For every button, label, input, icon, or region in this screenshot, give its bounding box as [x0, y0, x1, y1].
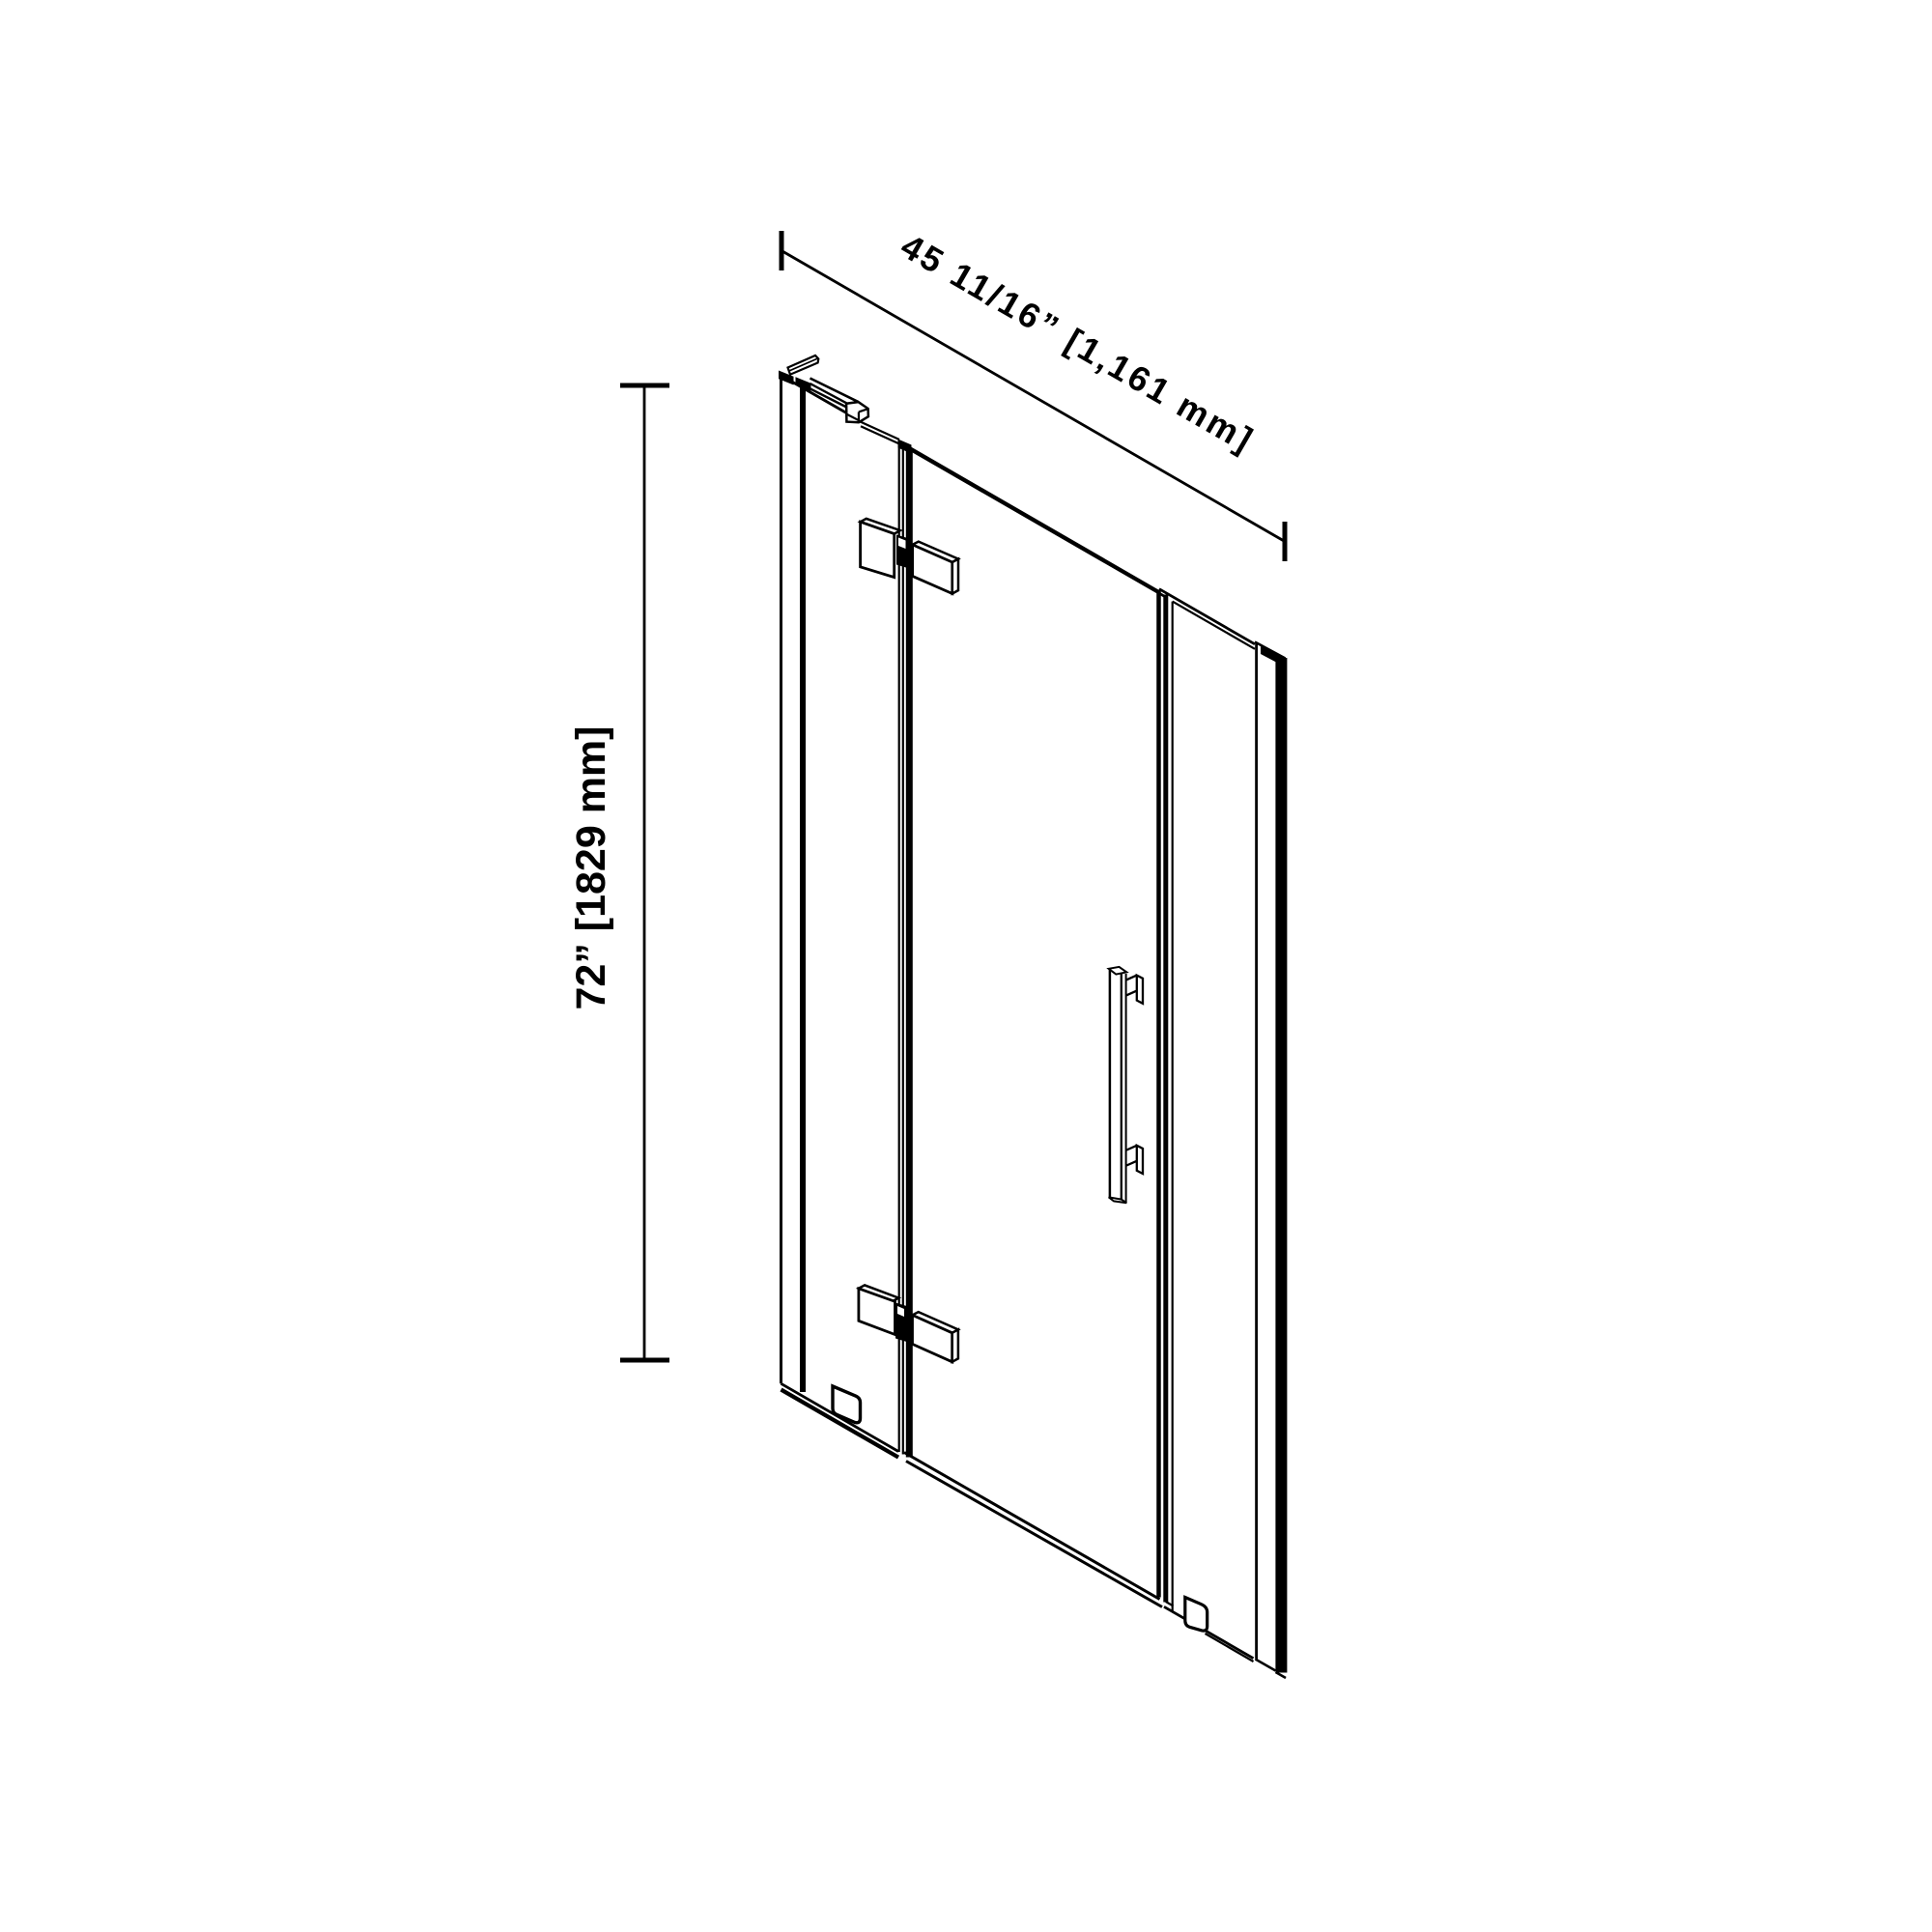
svg-text:72” [1829 mm]: 72” [1829 mm] — [568, 726, 614, 1010]
svg-text:45 11/16” [1,161 mm]: 45 11/16” [1,161 mm] — [895, 226, 1262, 461]
